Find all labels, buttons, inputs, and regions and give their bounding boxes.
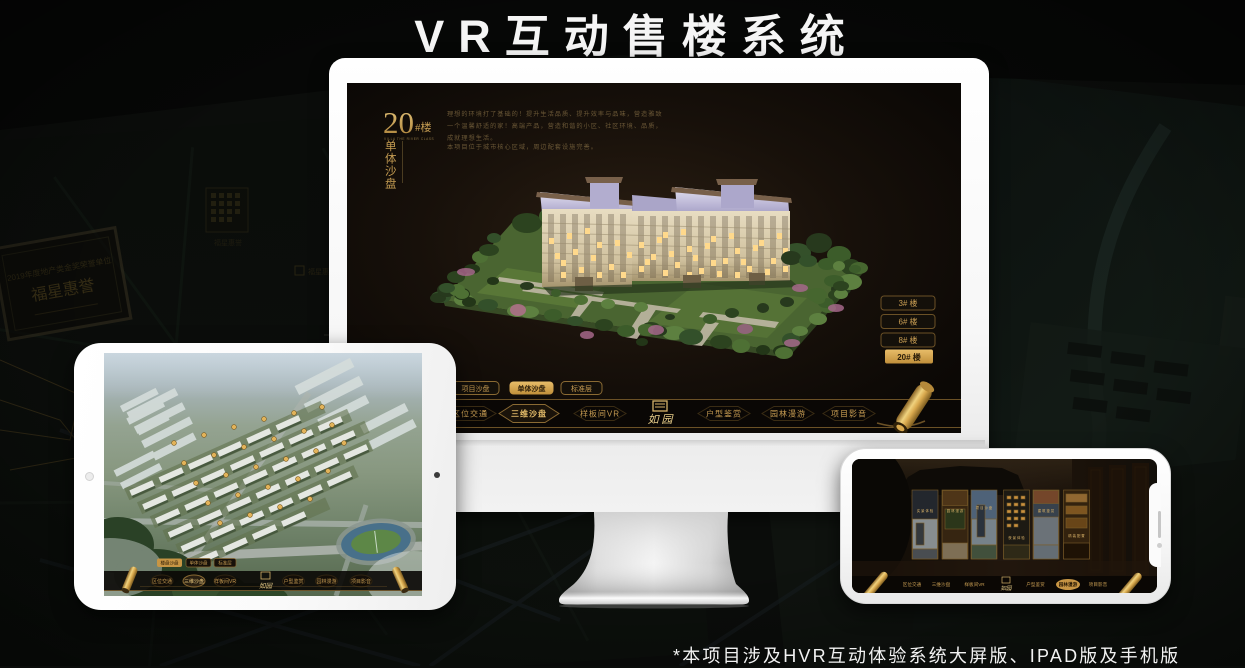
svg-text:建 筑 鉴 赏: 建 筑 鉴 赏 [1038, 508, 1055, 513]
svg-text:园林漫游: 园林漫游 [1059, 581, 1078, 588]
svg-text:项目沙盘: 项目沙盘 [462, 384, 490, 393]
svg-text:单体沙盘: 单体沙盘 [518, 384, 546, 393]
svg-text:3# 楼: 3# 楼 [898, 298, 917, 308]
svg-text:本项目位于城市核心区域，周边配套设施完善。: 本项目位于城市核心区域，周边配套设施完善。 [447, 143, 598, 151]
svg-text:项目影音: 项目影音 [831, 409, 867, 419]
svg-text:户型鉴赏: 户型鉴赏 [706, 409, 742, 419]
svg-text:项 目 沙 盘: 项 目 沙 盘 [976, 505, 993, 510]
svg-text:区位交通: 区位交通 [452, 409, 488, 419]
svg-text:三维沙盘: 三维沙盘 [184, 578, 204, 585]
svg-text:项目影音: 项目影音 [1089, 581, 1108, 588]
svg-text:三维沙盘: 三维沙盘 [511, 409, 547, 419]
svg-text:样板间VR: 样板间VR [580, 409, 620, 419]
svg-text:标准层: 标准层 [571, 384, 592, 393]
svg-text:区位交通: 区位交通 [152, 578, 172, 585]
svg-text:理想的环境打了基础的！提升生活品质、提升效率与品味，营造雅致: 理想的环境打了基础的！提升生活品质、提升效率与品味，营造雅致 [447, 110, 663, 118]
svg-text:夜 景 体 验: 夜 景 体 验 [1008, 535, 1025, 540]
svg-text:项目影音: 项目影音 [351, 578, 371, 585]
svg-text:8# 楼: 8# 楼 [898, 335, 917, 345]
svg-text:盘: 盘 [385, 177, 397, 191]
svg-text:户型鉴赏: 户型鉴赏 [283, 578, 303, 585]
svg-text:园林漫游: 园林漫游 [316, 578, 336, 585]
svg-text:园 林 漫 游: 园 林 漫 游 [947, 508, 964, 513]
svg-text:体: 体 [385, 152, 397, 166]
svg-text:6# 楼: 6# 楼 [898, 317, 917, 327]
svg-text:#楼: #楼 [415, 120, 432, 134]
svg-text:楼盘沙盘: 楼盘沙盘 [161, 560, 179, 567]
svg-text:区位交通: 区位交通 [903, 581, 922, 588]
svg-text:如园: 如园 [259, 582, 274, 590]
svg-text:一个温馨舒适的家！高端产品，营造和谐的小区、社区环境、品质，: 一个温馨舒适的家！高端产品，营造和谐的小区、社区环境、品质， [447, 122, 663, 130]
svg-text:沙: 沙 [385, 165, 397, 178]
svg-text:园林漫游: 园林漫游 [770, 409, 806, 419]
svg-text:20# 楼: 20# 楼 [897, 352, 921, 362]
svg-text:样板间VR: 样板间VR [964, 581, 985, 588]
svg-text:如 园: 如 园 [648, 413, 675, 426]
svg-text:精 装 配 置: 精 装 配 置 [1068, 533, 1085, 538]
svg-text:成就理想生活。: 成就理想生活。 [447, 134, 497, 142]
svg-text:户型鉴赏: 户型鉴赏 [1026, 581, 1045, 588]
svg-text:20: 20 [383, 105, 414, 140]
svg-text:标准层: 标准层 [218, 560, 232, 567]
svg-text:三维沙盘: 三维沙盘 [932, 581, 951, 588]
svg-text:单体沙盘: 单体沙盘 [190, 560, 208, 567]
svg-text:实 景 体 验: 实 景 体 验 [917, 508, 934, 513]
svg-text:单: 单 [385, 140, 397, 153]
svg-text:如园: 如园 [1000, 585, 1013, 592]
svg-text:样板间VR: 样板间VR [214, 578, 236, 585]
